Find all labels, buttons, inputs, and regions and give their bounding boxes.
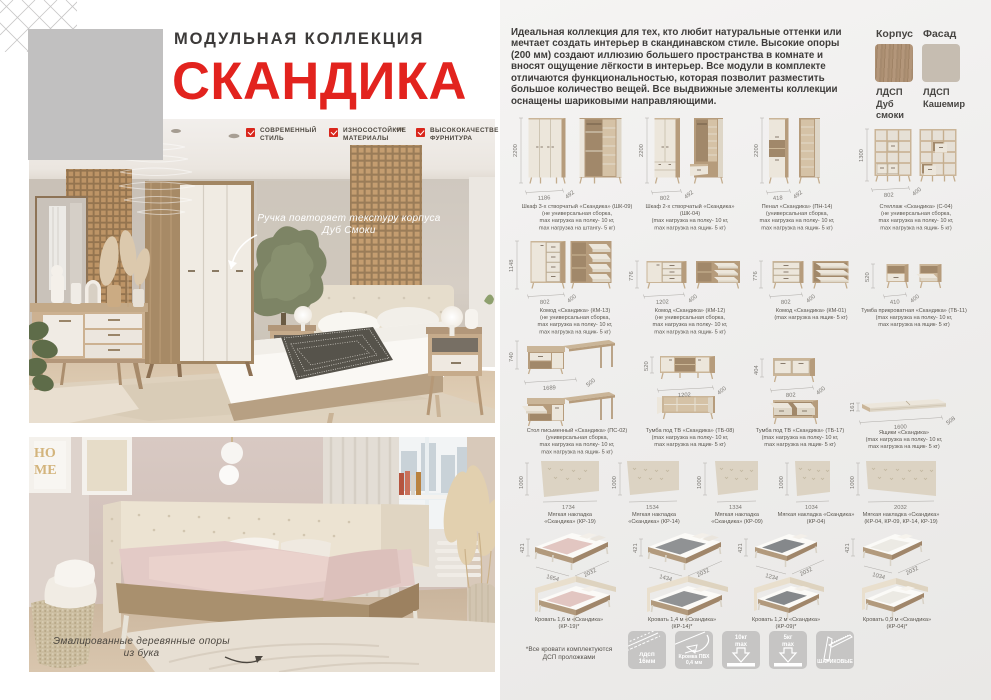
svg-text:HO: HO — [34, 446, 56, 461]
svg-text:ME: ME — [34, 463, 57, 478]
svg-text:802: 802 — [786, 392, 796, 398]
svg-text:2200: 2200 — [754, 144, 760, 157]
svg-text:2032: 2032 — [696, 568, 710, 579]
svg-text:1000: 1000 — [779, 476, 785, 489]
svg-text:492: 492 — [684, 190, 695, 201]
svg-text:2032: 2032 — [905, 566, 919, 577]
svg-text:421: 421 — [738, 543, 744, 553]
svg-text:421: 421 — [845, 543, 851, 553]
svg-text:1148: 1148 — [509, 260, 515, 272]
svg-text:740: 740 — [509, 352, 515, 362]
svg-text:400: 400 — [816, 386, 827, 397]
svg-text:2032: 2032 — [583, 568, 597, 579]
svg-text:802: 802 — [660, 195, 670, 201]
svg-text:400: 400 — [567, 294, 578, 305]
svg-text:400: 400 — [688, 294, 699, 305]
svg-text:2032: 2032 — [799, 567, 813, 578]
svg-text:1689: 1689 — [543, 385, 556, 392]
svg-text:802: 802 — [540, 299, 550, 305]
svg-text:508: 508 — [946, 416, 957, 427]
svg-text:1186: 1186 — [538, 195, 551, 202]
svg-text:161: 161 — [850, 402, 856, 412]
svg-text:1202: 1202 — [678, 392, 691, 399]
svg-text:421: 421 — [520, 543, 526, 553]
svg-text:802: 802 — [781, 299, 791, 305]
svg-text:1000: 1000 — [612, 476, 618, 489]
svg-text:1202: 1202 — [656, 299, 669, 306]
svg-text:1000: 1000 — [697, 476, 703, 489]
svg-text:776: 776 — [753, 271, 759, 281]
svg-text:520: 520 — [644, 361, 650, 371]
svg-text:1000: 1000 — [850, 476, 856, 489]
svg-text:1000: 1000 — [519, 476, 525, 489]
svg-text:492: 492 — [793, 190, 804, 201]
svg-text:400: 400 — [717, 386, 728, 397]
svg-text:500: 500 — [586, 378, 597, 389]
svg-text:1034: 1034 — [871, 572, 886, 581]
svg-text:776: 776 — [629, 271, 635, 281]
svg-text:400: 400 — [912, 187, 923, 198]
svg-text:410: 410 — [890, 299, 900, 305]
svg-text:421: 421 — [633, 543, 639, 553]
svg-text:2200: 2200 — [513, 144, 519, 157]
svg-text:802: 802 — [884, 192, 894, 198]
svg-text:404: 404 — [754, 365, 760, 375]
svg-text:1300: 1300 — [859, 149, 865, 162]
svg-text:1654: 1654 — [545, 574, 560, 583]
svg-text:400: 400 — [806, 294, 817, 305]
svg-text:1234: 1234 — [764, 573, 779, 582]
svg-text:492: 492 — [565, 190, 576, 201]
svg-text:418: 418 — [773, 195, 783, 201]
svg-text:400: 400 — [910, 294, 921, 305]
svg-text:520: 520 — [865, 272, 871, 282]
svg-text:2200: 2200 — [639, 144, 645, 157]
svg-text:1434: 1434 — [658, 574, 673, 583]
